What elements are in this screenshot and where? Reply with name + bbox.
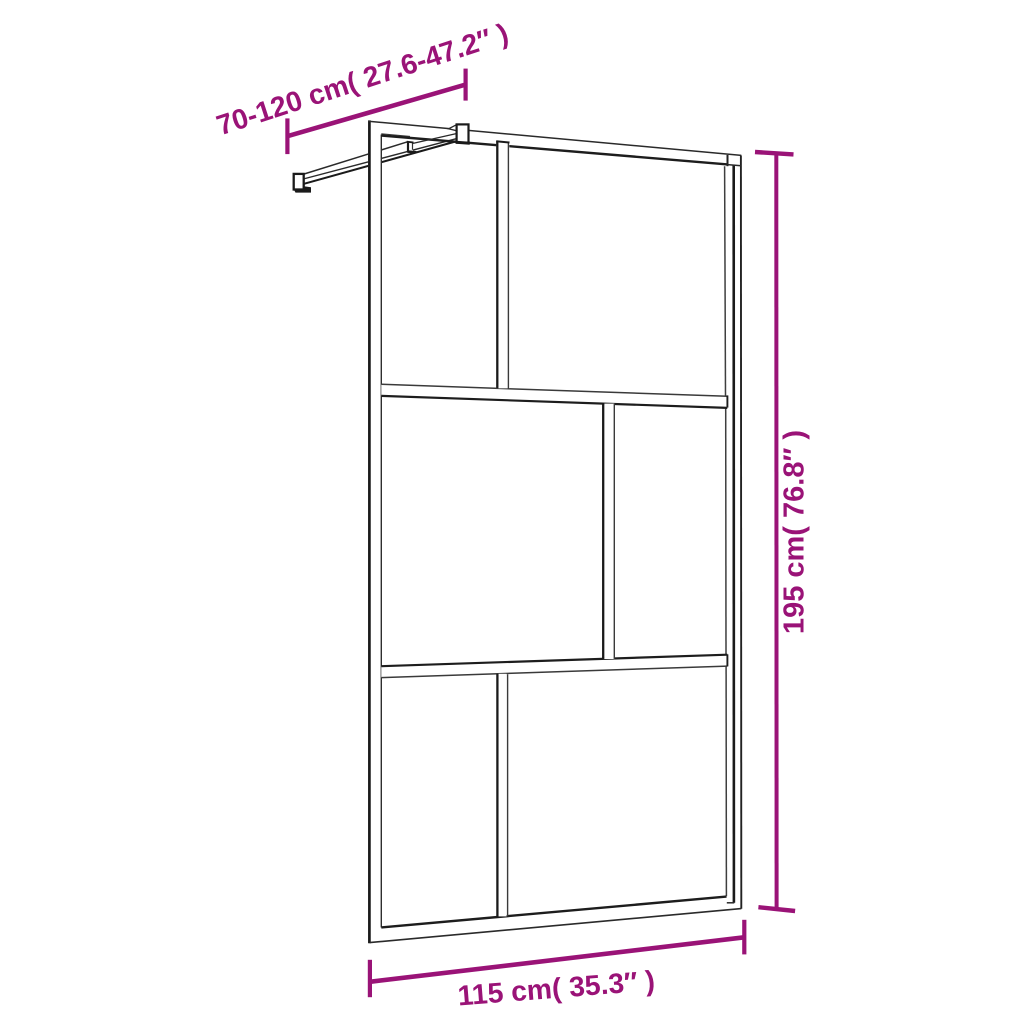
svg-text:195 cm( 76.8″ ): 195 cm( 76.8″ ) — [778, 430, 810, 634]
